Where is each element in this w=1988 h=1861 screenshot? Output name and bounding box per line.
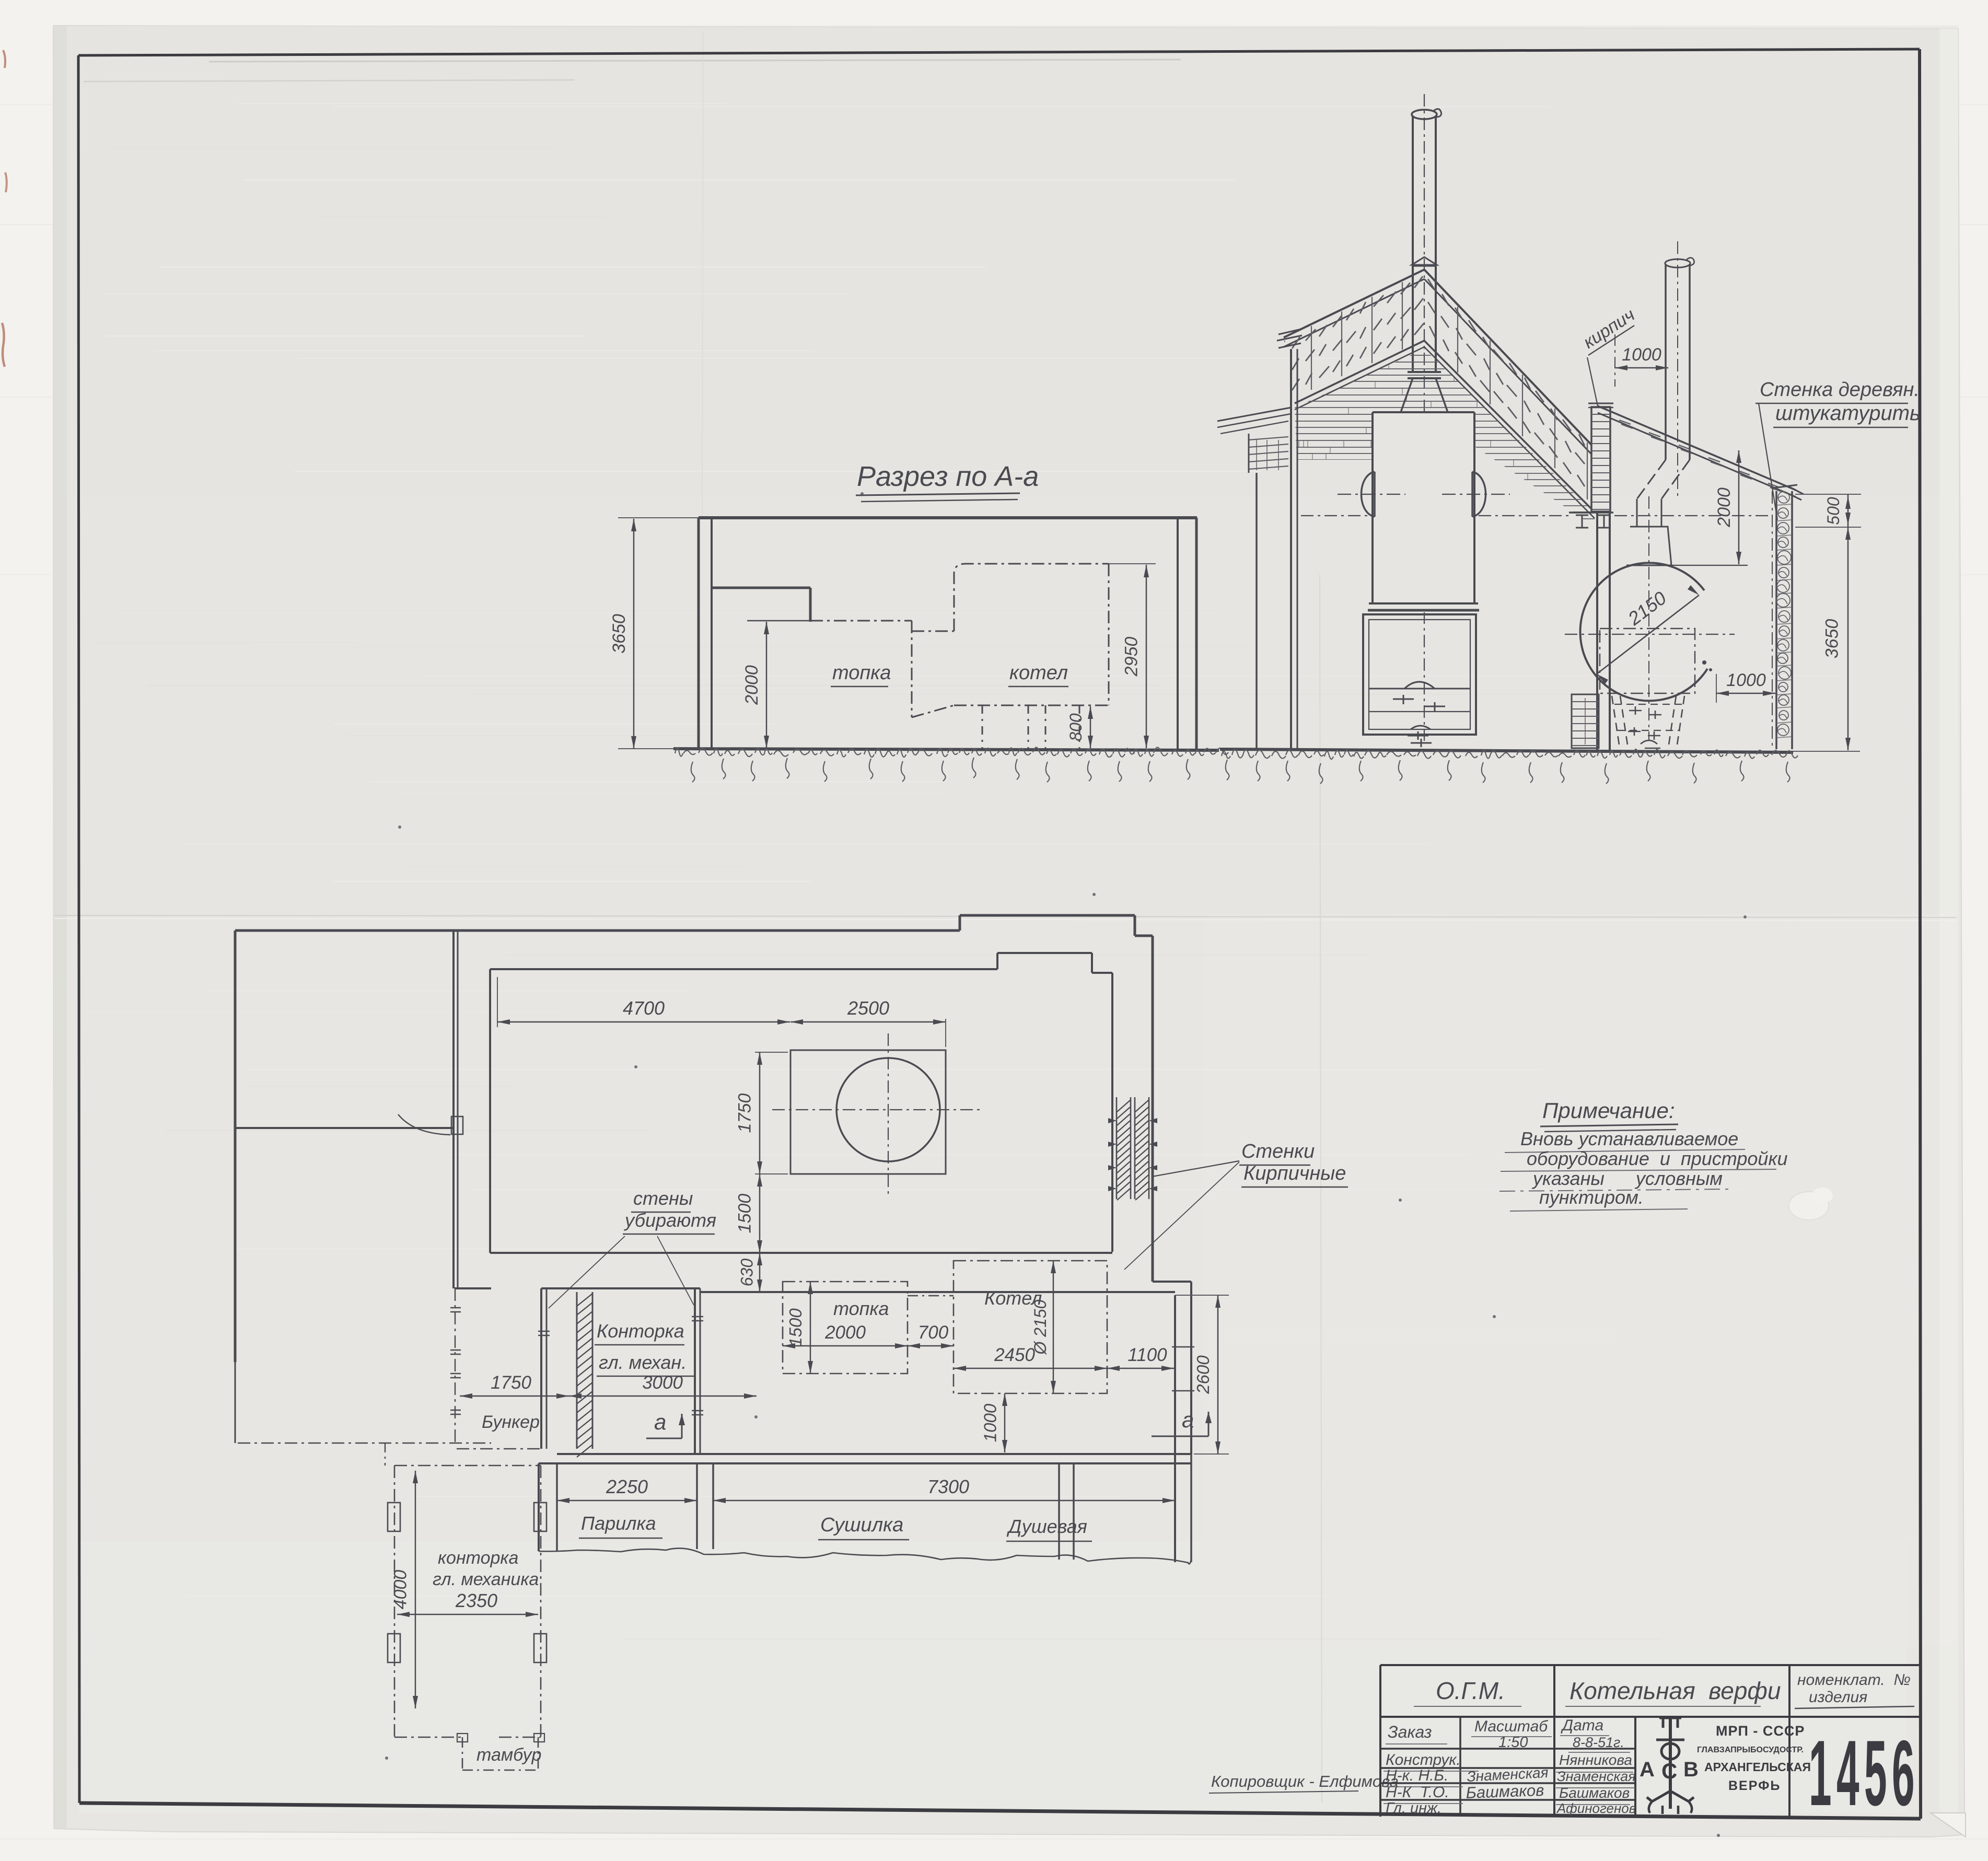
svg-text:3650: 3650 xyxy=(609,614,629,654)
svg-text:2250: 2250 xyxy=(606,1476,648,1497)
svg-text:ВЕРФЬ: ВЕРФЬ xyxy=(1728,1778,1781,1793)
svg-text:Гл. инж.: Гл. инж. xyxy=(1386,1800,1441,1817)
svg-text:гл. механ.: гл. механ. xyxy=(599,1352,687,1373)
svg-text:топка: топка xyxy=(832,662,891,684)
svg-text:убираютя: убираютя xyxy=(623,1209,716,1231)
svg-text:В: В xyxy=(1683,1758,1699,1781)
svg-text:Примечание:: Примечание: xyxy=(1542,1098,1675,1123)
svg-text:Кирпичные: Кирпичные xyxy=(1243,1162,1346,1184)
svg-text:4700: 4700 xyxy=(623,997,665,1019)
svg-text:указаны условным: указаны условным xyxy=(1531,1168,1723,1189)
svg-text:Афиногенов: Афиногенов xyxy=(1556,1800,1636,1816)
svg-text:630: 630 xyxy=(738,1259,757,1287)
svg-text:Вновь устанавливаемое: Вновь устанавливаемое xyxy=(1520,1128,1738,1149)
svg-text:4: 4 xyxy=(1836,1722,1859,1825)
svg-text:Заказ: Заказ xyxy=(1388,1723,1432,1741)
svg-text:4000: 4000 xyxy=(391,1570,411,1610)
svg-text:Дата: Дата xyxy=(1561,1717,1603,1734)
svg-text:5: 5 xyxy=(1864,1722,1887,1825)
svg-text:Стенки: Стенки xyxy=(1241,1141,1315,1162)
svg-text:Парилка: Парилка xyxy=(581,1513,656,1534)
svg-text:1750: 1750 xyxy=(735,1094,755,1133)
svg-text:1100: 1100 xyxy=(1127,1345,1167,1365)
svg-text:С: С xyxy=(1661,1759,1677,1783)
svg-text:гл. механика: гл. механика xyxy=(433,1569,539,1589)
svg-text:2950: 2950 xyxy=(1122,637,1142,677)
svg-text:700: 700 xyxy=(918,1322,949,1343)
svg-text:Душевая: Душевая xyxy=(1006,1516,1087,1537)
svg-text:2000: 2000 xyxy=(742,665,762,705)
svg-text:2000: 2000 xyxy=(824,1322,866,1343)
svg-text:Масштаб: Масштаб xyxy=(1474,1718,1548,1735)
svg-text:Сушилка: Сушилка xyxy=(820,1514,903,1536)
svg-text:А: А xyxy=(1640,1758,1655,1781)
svg-text:топка: топка xyxy=(833,1298,889,1319)
svg-text:Знаменская: Знаменская xyxy=(1557,1769,1636,1784)
svg-text:6: 6 xyxy=(1892,1722,1915,1825)
svg-text:1500: 1500 xyxy=(786,1308,805,1347)
svg-text:оборудование и пристройки: оборудование и пристройки xyxy=(1527,1148,1787,1169)
svg-text:500: 500 xyxy=(1824,497,1843,525)
svg-text:а: а xyxy=(1182,1408,1194,1432)
svg-text:пунктиром.: пунктиром. xyxy=(1539,1187,1644,1208)
svg-text:2500: 2500 xyxy=(847,997,889,1019)
svg-text:1750: 1750 xyxy=(491,1373,531,1393)
svg-text:2000: 2000 xyxy=(1714,487,1734,528)
svg-text:1000: 1000 xyxy=(1726,670,1766,690)
svg-text:1:50: 1:50 xyxy=(1498,1734,1528,1751)
svg-text:стены: стены xyxy=(633,1188,693,1209)
svg-text:Башмаков: Башмаков xyxy=(1466,1781,1544,1802)
svg-text:2450: 2450 xyxy=(994,1345,1035,1365)
svg-text:8-8-51г.: 8-8-51г. xyxy=(1573,1735,1624,1750)
svg-text:Копировщик - Елфимова: Копировщик - Елфимова xyxy=(1211,1772,1399,1790)
svg-text:изделия: изделия xyxy=(1809,1689,1867,1706)
svg-text:Н-к. Н.Б.: Н-к. Н.Б. xyxy=(1386,1767,1448,1784)
svg-text:штукатурить: штукатурить xyxy=(1775,402,1921,425)
svg-text:1500: 1500 xyxy=(735,1194,755,1234)
svg-text:Н-К Т.О.: Н-К Т.О. xyxy=(1386,1784,1449,1801)
svg-text:2350: 2350 xyxy=(455,1590,497,1611)
svg-text:АРХАНГЕЛЬСКАЯ: АРХАНГЕЛЬСКАЯ xyxy=(1704,1760,1811,1774)
svg-text:МРП - СССР: МРП - СССР xyxy=(1716,1723,1805,1739)
svg-text:О.Г.М.: О.Г.М. xyxy=(1436,1677,1505,1704)
svg-text:800: 800 xyxy=(1066,713,1085,741)
svg-text:1: 1 xyxy=(1809,1722,1832,1825)
svg-text:Разрез по А-а: Разрез по А-а xyxy=(857,461,1039,492)
svg-text:Стенка деревян.: Стенка деревян. xyxy=(1760,379,1920,401)
svg-text:3650: 3650 xyxy=(1822,619,1842,659)
svg-text:Нянникова: Нянникова xyxy=(1559,1752,1632,1768)
svg-text:Конструк.: Конструк. xyxy=(1386,1751,1461,1769)
svg-text:ГЛАВЗАПРЫБОСУДОСТР.: ГЛАВЗАПРЫБОСУДОСТР. xyxy=(1697,1746,1804,1754)
svg-text:котел: котел xyxy=(1009,662,1068,684)
svg-text:Башмаков: Башмаков xyxy=(1559,1785,1630,1801)
svg-text:Котельная верфи: Котельная верфи xyxy=(1570,1677,1781,1704)
svg-text:конторка: конторка xyxy=(438,1548,518,1568)
svg-text:1000: 1000 xyxy=(1622,345,1661,365)
svg-text:Бункер: Бункер xyxy=(482,1412,540,1432)
svg-text:тамбур: тамбур xyxy=(476,1745,541,1765)
svg-text:а: а xyxy=(654,1410,666,1434)
svg-text:номенклат. №: номенклат. № xyxy=(1797,1671,1911,1689)
svg-text:1000: 1000 xyxy=(981,1403,1000,1442)
svg-text:7300: 7300 xyxy=(927,1476,969,1497)
svg-text:2600: 2600 xyxy=(1193,1355,1213,1394)
svg-text:Конторка: Конторка xyxy=(597,1320,684,1342)
